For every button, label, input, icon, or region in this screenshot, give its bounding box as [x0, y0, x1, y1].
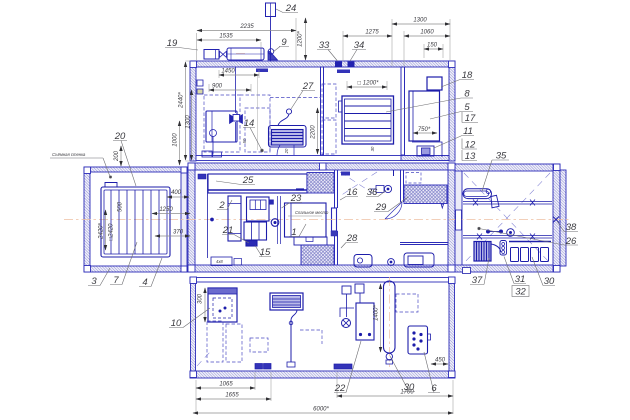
svg-text:26: 26	[565, 236, 577, 247]
svg-text:□ 1200*: □ 1200*	[358, 81, 380, 87]
svg-text:33: 33	[319, 40, 330, 51]
svg-text:30: 30	[544, 276, 555, 287]
svg-text:31: 31	[515, 274, 526, 285]
svg-text:18: 18	[462, 70, 473, 81]
svg-text:23: 23	[290, 193, 302, 204]
svg-text:3: 3	[91, 276, 97, 287]
svg-text:750*: 750*	[418, 127, 431, 133]
svg-text:500: 500	[118, 201, 124, 212]
svg-text:9: 9	[281, 37, 287, 48]
svg-text:4х8: 4х8	[216, 259, 223, 264]
svg-text:17: 17	[465, 113, 476, 124]
svg-text:36: 36	[367, 187, 378, 198]
svg-text:15: 15	[260, 247, 271, 258]
svg-text:□2420: □2420	[109, 223, 115, 241]
svg-text:28: 28	[346, 233, 358, 244]
svg-text:30: 30	[370, 146, 375, 151]
svg-text:8: 8	[464, 89, 470, 100]
svg-text:27: 27	[302, 81, 314, 92]
svg-text:19: 19	[167, 38, 178, 49]
svg-text:1655: 1655	[225, 393, 239, 399]
svg-text:25: 25	[242, 175, 254, 186]
svg-text:1535: 1535	[219, 34, 233, 40]
svg-text:13: 13	[465, 151, 476, 162]
svg-text:1065: 1065	[219, 382, 233, 388]
svg-text:2: 2	[218, 200, 225, 211]
svg-text:150: 150	[427, 43, 438, 49]
svg-text:14: 14	[244, 118, 255, 129]
svg-text:1450: 1450	[221, 69, 235, 75]
svg-text:38: 38	[566, 222, 577, 233]
svg-text:2440*: 2440*	[179, 91, 185, 108]
svg-text:24: 24	[285, 3, 297, 14]
svg-text:12: 12	[465, 140, 476, 151]
svg-text:16: 16	[347, 187, 358, 198]
svg-text:4: 4	[142, 277, 147, 288]
svg-text:200: 200	[114, 150, 120, 162]
svg-text:10: 10	[171, 318, 182, 329]
svg-text:1000: 1000	[173, 133, 179, 147]
svg-text:300: 300	[198, 293, 204, 304]
svg-text:370: 370	[173, 230, 184, 236]
svg-text:20: 20	[114, 131, 126, 142]
svg-text:11: 11	[463, 126, 473, 137]
svg-text:50: 50	[242, 138, 247, 143]
svg-text:400: 400	[171, 190, 182, 196]
svg-text:32: 32	[515, 287, 526, 298]
svg-text:1300: 1300	[413, 18, 427, 24]
svg-text:34: 34	[354, 40, 365, 51]
svg-text:29: 29	[375, 202, 387, 213]
svg-text:Съёмная стенка: Съёмная стенка	[52, 152, 86, 157]
svg-text:1200*: 1200*	[298, 30, 304, 46]
svg-text:20: 20	[284, 148, 289, 154]
svg-text:900: 900	[212, 84, 223, 90]
svg-text:6: 6	[431, 383, 437, 394]
svg-text:7: 7	[113, 275, 119, 286]
svg-text:450: 450	[435, 358, 446, 364]
svg-text:37: 37	[472, 275, 483, 286]
svg-text:30: 30	[404, 382, 415, 393]
svg-text:5: 5	[464, 102, 470, 113]
svg-text:6000*: 6000*	[313, 407, 329, 413]
svg-text:2200: 2200	[311, 125, 317, 140]
svg-text:1275: 1275	[365, 30, 379, 36]
svg-text:1300: 1300	[186, 115, 192, 129]
svg-text:2235: 2235	[239, 24, 254, 30]
svg-text:35: 35	[496, 151, 507, 162]
svg-text:22: 22	[334, 383, 346, 394]
svg-text:1250: 1250	[159, 207, 173, 213]
svg-text:21: 21	[222, 225, 234, 236]
svg-text:Спальное место: Спальное место	[295, 210, 329, 215]
svg-text:1400*: 1400*	[374, 304, 380, 320]
svg-text:1: 1	[291, 227, 296, 238]
svg-text:2420*: 2420*	[99, 222, 105, 239]
svg-text:1060: 1060	[420, 30, 434, 36]
